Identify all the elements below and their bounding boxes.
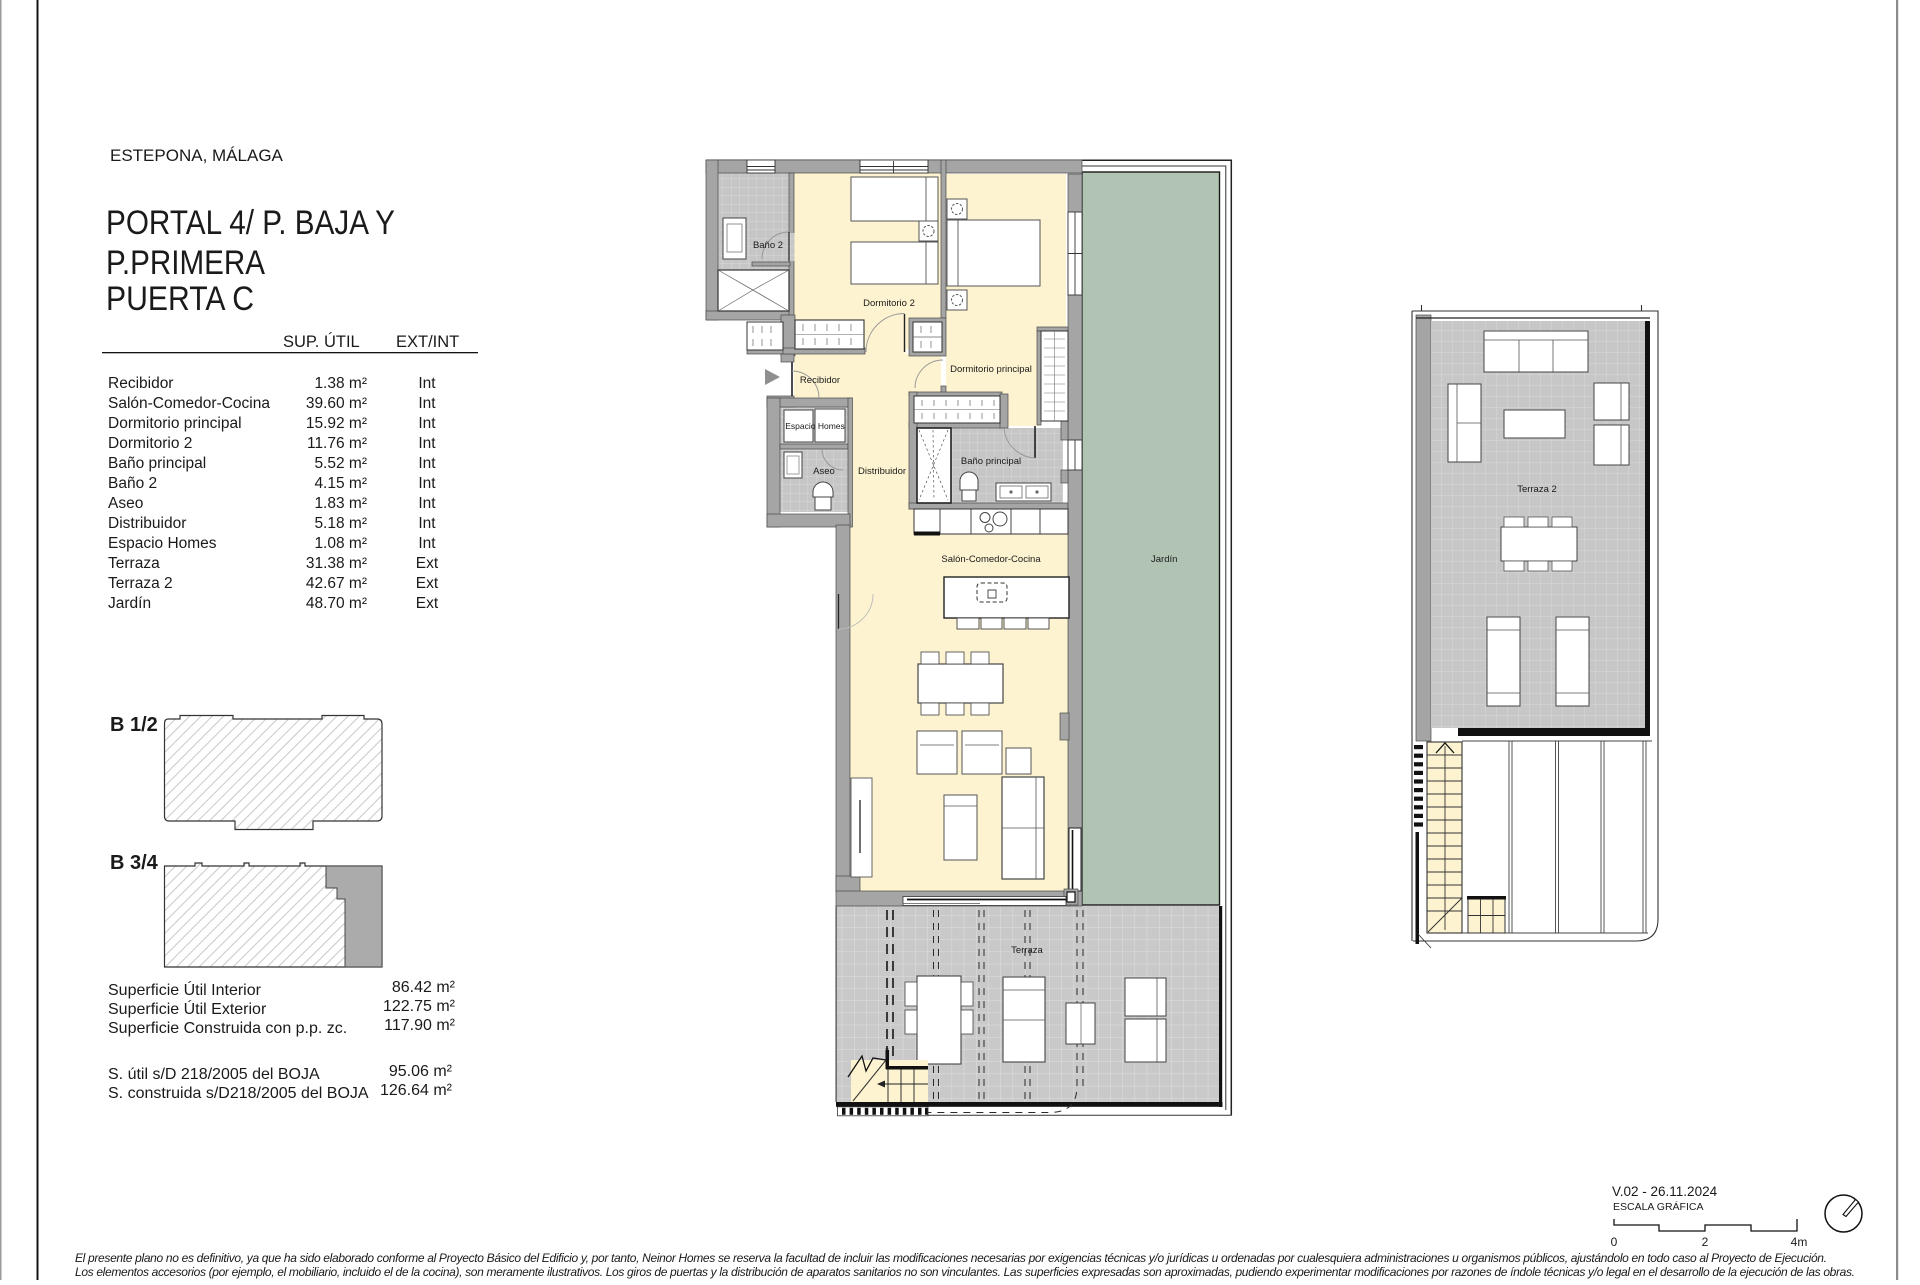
svg-text:Int: Int: [418, 415, 436, 432]
svg-text:Espacio Homes: Espacio Homes: [785, 421, 845, 431]
svg-text:Int: Int: [418, 395, 436, 412]
svg-text:126.64 m²: 126.64 m²: [380, 1082, 453, 1099]
svg-text:Recibidor: Recibidor: [800, 375, 840, 386]
svg-text:0: 0: [1611, 1235, 1618, 1249]
svg-text:Terraza: Terraza: [108, 555, 160, 572]
svg-text:117.90 m²: 117.90 m²: [384, 1017, 456, 1034]
svg-text:Distribuidor: Distribuidor: [858, 466, 906, 477]
svg-text:Int: Int: [418, 375, 436, 392]
svg-text:5.52 m²: 5.52 m²: [314, 455, 367, 472]
svg-text:15.92 m²: 15.92 m²: [306, 415, 367, 432]
svg-text:Superficie Construida con p.p.: Superficie Construida con p.p. zc.: [108, 1020, 347, 1037]
svg-text:B 3/4: B 3/4: [110, 852, 159, 874]
svg-text:Dormitorio 2: Dormitorio 2: [108, 435, 192, 452]
svg-text:39.60 m²: 39.60 m²: [306, 395, 367, 412]
svg-text:Recibidor: Recibidor: [108, 375, 173, 392]
svg-text:Ext: Ext: [416, 575, 439, 592]
svg-text:95.06 m²: 95.06 m²: [389, 1063, 453, 1080]
svg-text:PUERTA C: PUERTA C: [106, 280, 254, 318]
svg-text:1.38 m²: 1.38 m²: [314, 375, 367, 392]
svg-text:11.76 m²: 11.76 m²: [307, 435, 367, 452]
svg-text:Salón-Comedor-Cocina: Salón-Comedor-Cocina: [941, 554, 1041, 565]
svg-text:B 1/2: B 1/2: [110, 714, 158, 736]
svg-text:Terraza: Terraza: [1011, 945, 1043, 956]
svg-text:Aseo: Aseo: [813, 466, 835, 477]
svg-text:Ext: Ext: [416, 555, 439, 572]
svg-text:V.02 - 26.11.2024: V.02 - 26.11.2024: [1612, 1184, 1718, 1199]
svg-text:Ext: Ext: [416, 595, 439, 612]
svg-text:SUP. ÚTIL: SUP. ÚTIL: [283, 332, 360, 351]
svg-text:Aseo: Aseo: [108, 495, 143, 512]
svg-text:Salón-Comedor-Cocina: Salón-Comedor-Cocina: [108, 395, 270, 412]
svg-text:Int: Int: [418, 535, 436, 552]
svg-text:5.18 m²: 5.18 m²: [314, 515, 367, 532]
svg-text:4m: 4m: [1791, 1235, 1808, 1249]
svg-text:El presente plano no es defini: El presente plano no es definitivo, ya q…: [75, 1251, 1827, 1265]
svg-text:48.70 m²: 48.70 m²: [306, 595, 367, 612]
svg-text:Superficie Útil Exterior: Superficie Útil Exterior: [108, 999, 267, 1018]
svg-text:Int: Int: [418, 495, 436, 512]
svg-text:2: 2: [1702, 1235, 1709, 1249]
svg-text:Superficie Útil Interior: Superficie Útil Interior: [108, 980, 262, 999]
svg-text:Int: Int: [418, 475, 436, 492]
svg-text:S. construida s/D218/2005 del: S. construida s/D218/2005 del BOJA: [108, 1085, 369, 1102]
svg-text:Baño 2: Baño 2: [753, 240, 783, 251]
svg-text:Espacio Homes: Espacio Homes: [108, 535, 217, 552]
svg-text:Terraza 2: Terraza 2: [108, 575, 173, 592]
svg-text:86.42 m²: 86.42 m²: [392, 979, 456, 996]
svg-text:Los elementos accesorios (por: Los elementos accesorios (por ejemplo, e…: [75, 1265, 1855, 1279]
svg-text:EXT/INT: EXT/INT: [396, 333, 459, 351]
svg-text:Terraza 2: Terraza 2: [1517, 484, 1557, 495]
svg-text:Baño principal: Baño principal: [108, 455, 206, 472]
svg-text:Dormitorio principal: Dormitorio principal: [950, 364, 1032, 375]
svg-text:ESTEPONA, MÁLAGA: ESTEPONA, MÁLAGA: [110, 146, 284, 165]
svg-text:Jardín: Jardín: [108, 595, 151, 612]
svg-text:Dormitorio principal: Dormitorio principal: [108, 415, 242, 432]
svg-text:Dormitorio 2: Dormitorio 2: [863, 298, 915, 309]
svg-text:1.83 m²: 1.83 m²: [314, 495, 367, 512]
svg-text:4.15 m²: 4.15 m²: [314, 475, 367, 492]
svg-text:42.67 m²: 42.67 m²: [306, 575, 367, 592]
svg-text:Int: Int: [418, 455, 436, 472]
svg-text:Baño 2: Baño 2: [108, 475, 157, 492]
svg-text:Int: Int: [418, 515, 436, 532]
svg-text:S. útil s/D 218/2005 del BOJA: S. útil s/D 218/2005 del BOJA: [108, 1066, 320, 1083]
svg-text:31.38 m²: 31.38 m²: [306, 555, 367, 572]
svg-text:P.PRIMERA: P.PRIMERA: [106, 244, 265, 282]
svg-text:ESCALA GRÁFICA: ESCALA GRÁFICA: [1613, 1200, 1703, 1213]
svg-text:1.08 m²: 1.08 m²: [314, 535, 367, 552]
svg-text:Distribuidor: Distribuidor: [108, 515, 186, 532]
svg-text:Baño principal: Baño principal: [961, 456, 1021, 467]
svg-text:Jardín: Jardín: [1151, 554, 1177, 565]
svg-text:122.75 m²: 122.75 m²: [383, 998, 456, 1015]
svg-text:Int: Int: [418, 435, 436, 452]
svg-text:PORTAL 4/ P. BAJA Y: PORTAL 4/ P. BAJA Y: [106, 204, 395, 242]
